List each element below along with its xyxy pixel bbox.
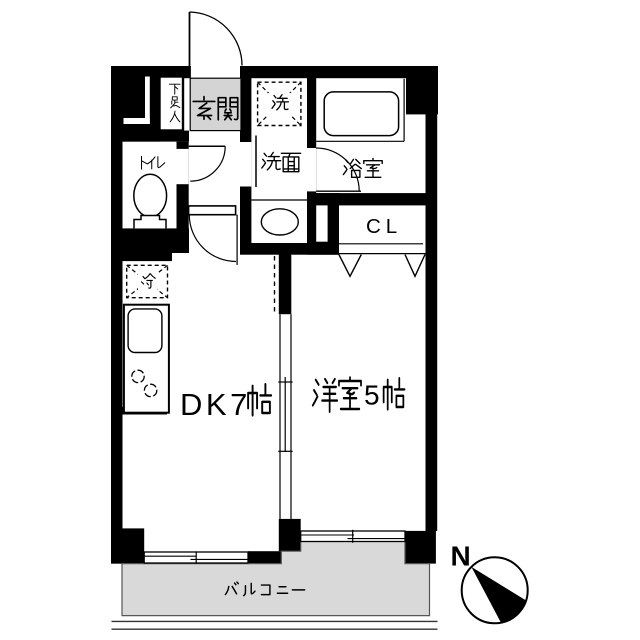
svg-text:5: 5	[364, 380, 380, 411]
svg-text:DK7: DK7	[180, 387, 251, 422]
svg-text:CL: CL	[366, 215, 402, 238]
svg-text:N: N	[451, 541, 471, 572]
